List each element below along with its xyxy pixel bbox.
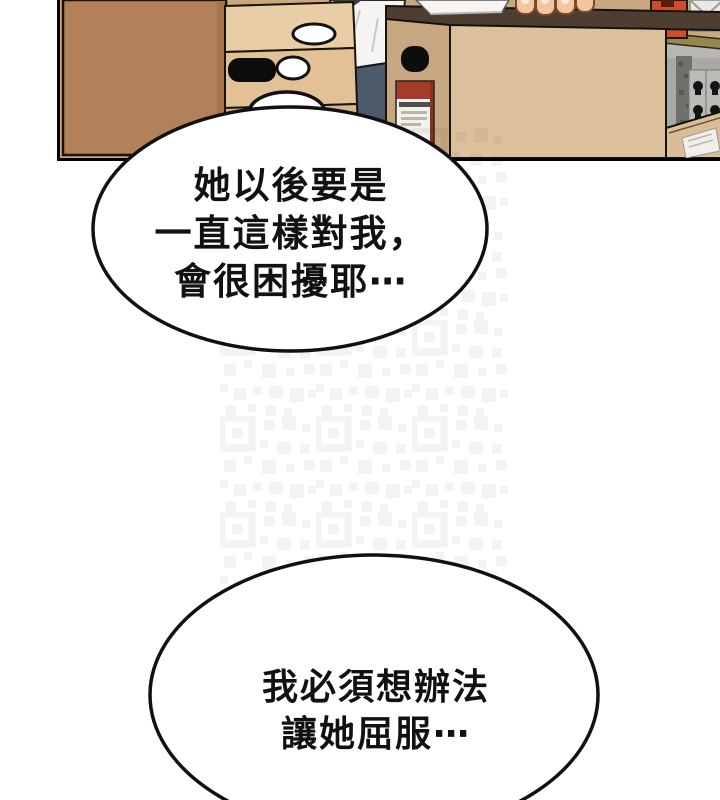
handle-slot-icon: [228, 58, 276, 82]
speech-line: 讓她屈服⋯: [146, 710, 606, 757]
storeroom-panel: [57, 0, 720, 161]
shipping-label: [396, 81, 434, 146]
speech-line: 會很困擾耶⋯: [85, 258, 497, 306]
comic-page: 她以後要是 一直這樣對我， 會很困擾耶⋯ 我必須想辦法 讓她屈服⋯: [0, 0, 720, 800]
speech-line: 一直這樣對我，: [85, 210, 497, 258]
storeroom-art: [60, 0, 720, 158]
handle-slot-icon: [401, 46, 429, 72]
dark-box: [63, 0, 226, 155]
speech-bubble-1-text: 她以後要是 一直這樣對我， 會很困擾耶⋯: [85, 162, 497, 306]
box-front: [450, 25, 666, 158]
speech-line: 她以後要是: [85, 162, 497, 210]
handle-hole-icon: [293, 24, 335, 44]
speech-line: 我必須想辦法: [146, 663, 606, 710]
sleeve: [416, 0, 509, 14]
speech-bubble-2-text: 我必須想辦法 讓她屈服⋯: [146, 663, 606, 757]
handle-hole-icon: [277, 57, 309, 79]
stacked-boxes: [225, 2, 358, 134]
